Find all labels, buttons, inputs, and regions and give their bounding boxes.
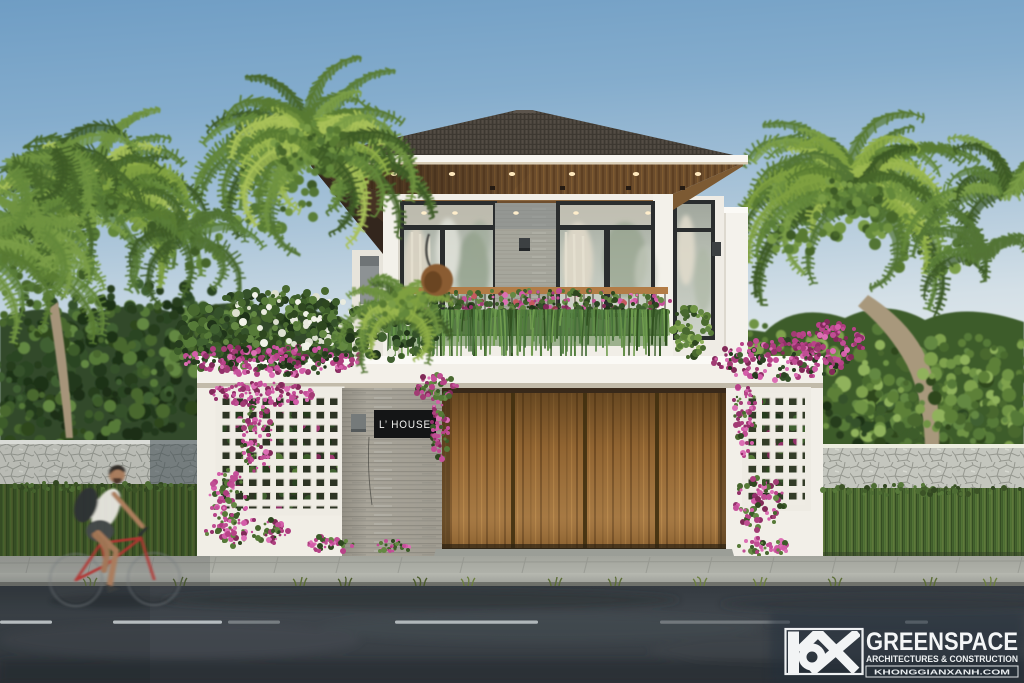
svg-text:L’ HOUSE: L’ HOUSE — [379, 419, 431, 431]
svg-text:KHONGGIANXANH.COM: KHONGGIANXANH.COM — [874, 670, 1010, 677]
svg-text:ARCHITECTURES & CONSTRUCTION: ARCHITECTURES & CONSTRUCTION — [866, 654, 1018, 665]
svg-text:GREENSPACE: GREENSPACE — [866, 628, 1018, 656]
